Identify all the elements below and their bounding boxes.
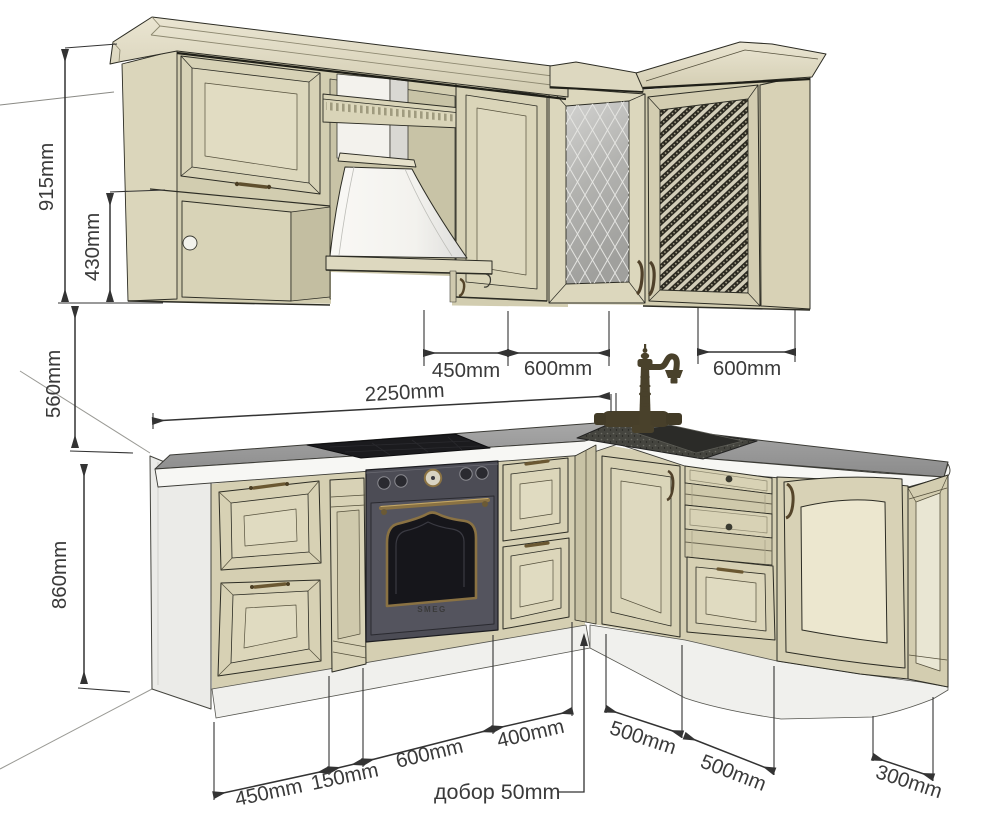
svg-text:SMEG: SMEG <box>417 605 447 614</box>
svg-text:915mm: 915mm <box>35 143 58 211</box>
svg-text:860mm: 860mm <box>48 541 71 609</box>
svg-text:добор 50mm: добор 50mm <box>434 780 560 804</box>
svg-text:560mm: 560mm <box>42 350 65 418</box>
svg-text:2250mm: 2250mm <box>364 379 445 406</box>
svg-text:430mm: 430mm <box>81 213 104 281</box>
svg-text:600mm: 600mm <box>524 357 592 380</box>
svg-text:600mm: 600mm <box>713 357 781 380</box>
